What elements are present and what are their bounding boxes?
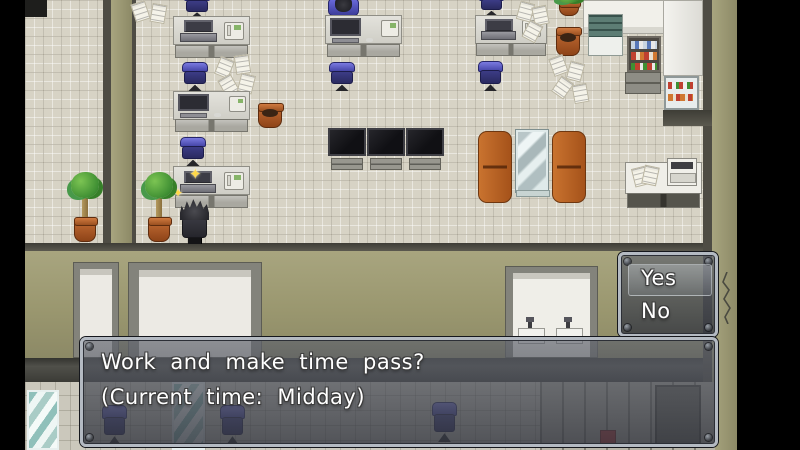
choice-option-yes[interactable]: Yes xyxy=(641,266,676,290)
bottom-wall-cap xyxy=(25,243,737,251)
paper xyxy=(571,83,589,104)
screw-icon xyxy=(86,434,93,441)
shower-mat xyxy=(27,390,59,450)
hallway-wall-shadow xyxy=(103,0,111,249)
tv-monitor xyxy=(406,128,444,170)
sparkle-icon: ✦ xyxy=(189,165,202,183)
choice-option-no[interactable]: No xyxy=(641,299,671,323)
message-line-2: (Current time: Midday) xyxy=(101,385,365,409)
office-desk xyxy=(173,91,250,132)
office-chair xyxy=(180,62,210,91)
potted-plant xyxy=(141,172,177,244)
dark-cabinet xyxy=(25,0,47,17)
fridge-column xyxy=(663,0,703,76)
office-chair xyxy=(327,62,357,91)
hallway-wall-edge xyxy=(132,0,136,249)
display-case xyxy=(664,76,699,110)
couch xyxy=(478,131,512,203)
game-screen: ✦ ✦ xyxy=(0,0,800,450)
game-viewport: ✦ ✦ xyxy=(25,0,737,450)
message-window: Work and make time pass? (Current time: … xyxy=(80,337,718,447)
letterbox-right xyxy=(737,0,800,450)
wall-crack xyxy=(718,272,736,324)
npc-worker-seated xyxy=(328,0,359,16)
hallway-wall xyxy=(111,0,132,249)
kitchen-sink xyxy=(588,14,623,56)
message-line-1: Work and make time pass? xyxy=(101,350,425,374)
player-character[interactable] xyxy=(177,198,212,244)
screw-icon xyxy=(705,324,712,331)
office-desk xyxy=(173,16,250,58)
office-desk xyxy=(325,15,402,57)
kitchen-wall-base xyxy=(663,110,712,126)
glass-table xyxy=(516,130,548,192)
empty-pot xyxy=(556,30,580,56)
screw-icon xyxy=(705,343,712,350)
potted-plant-small xyxy=(556,0,582,18)
screw-icon xyxy=(705,434,712,441)
office-chair xyxy=(476,61,505,91)
office-chair xyxy=(477,0,506,16)
shelf-with-goods xyxy=(627,36,661,72)
potted-plant xyxy=(67,172,103,244)
letterbox-left xyxy=(0,0,25,450)
choice-window: Yes No xyxy=(618,252,718,337)
office-chair xyxy=(178,137,208,166)
screw-icon xyxy=(624,324,631,331)
couch xyxy=(552,131,586,203)
printer-table xyxy=(625,162,702,208)
printer xyxy=(667,158,697,186)
tv-monitor xyxy=(328,128,366,170)
counter-cabinet xyxy=(625,72,661,94)
tv-monitor xyxy=(367,128,405,170)
planter-pot xyxy=(258,106,282,128)
screw-icon xyxy=(86,343,93,350)
